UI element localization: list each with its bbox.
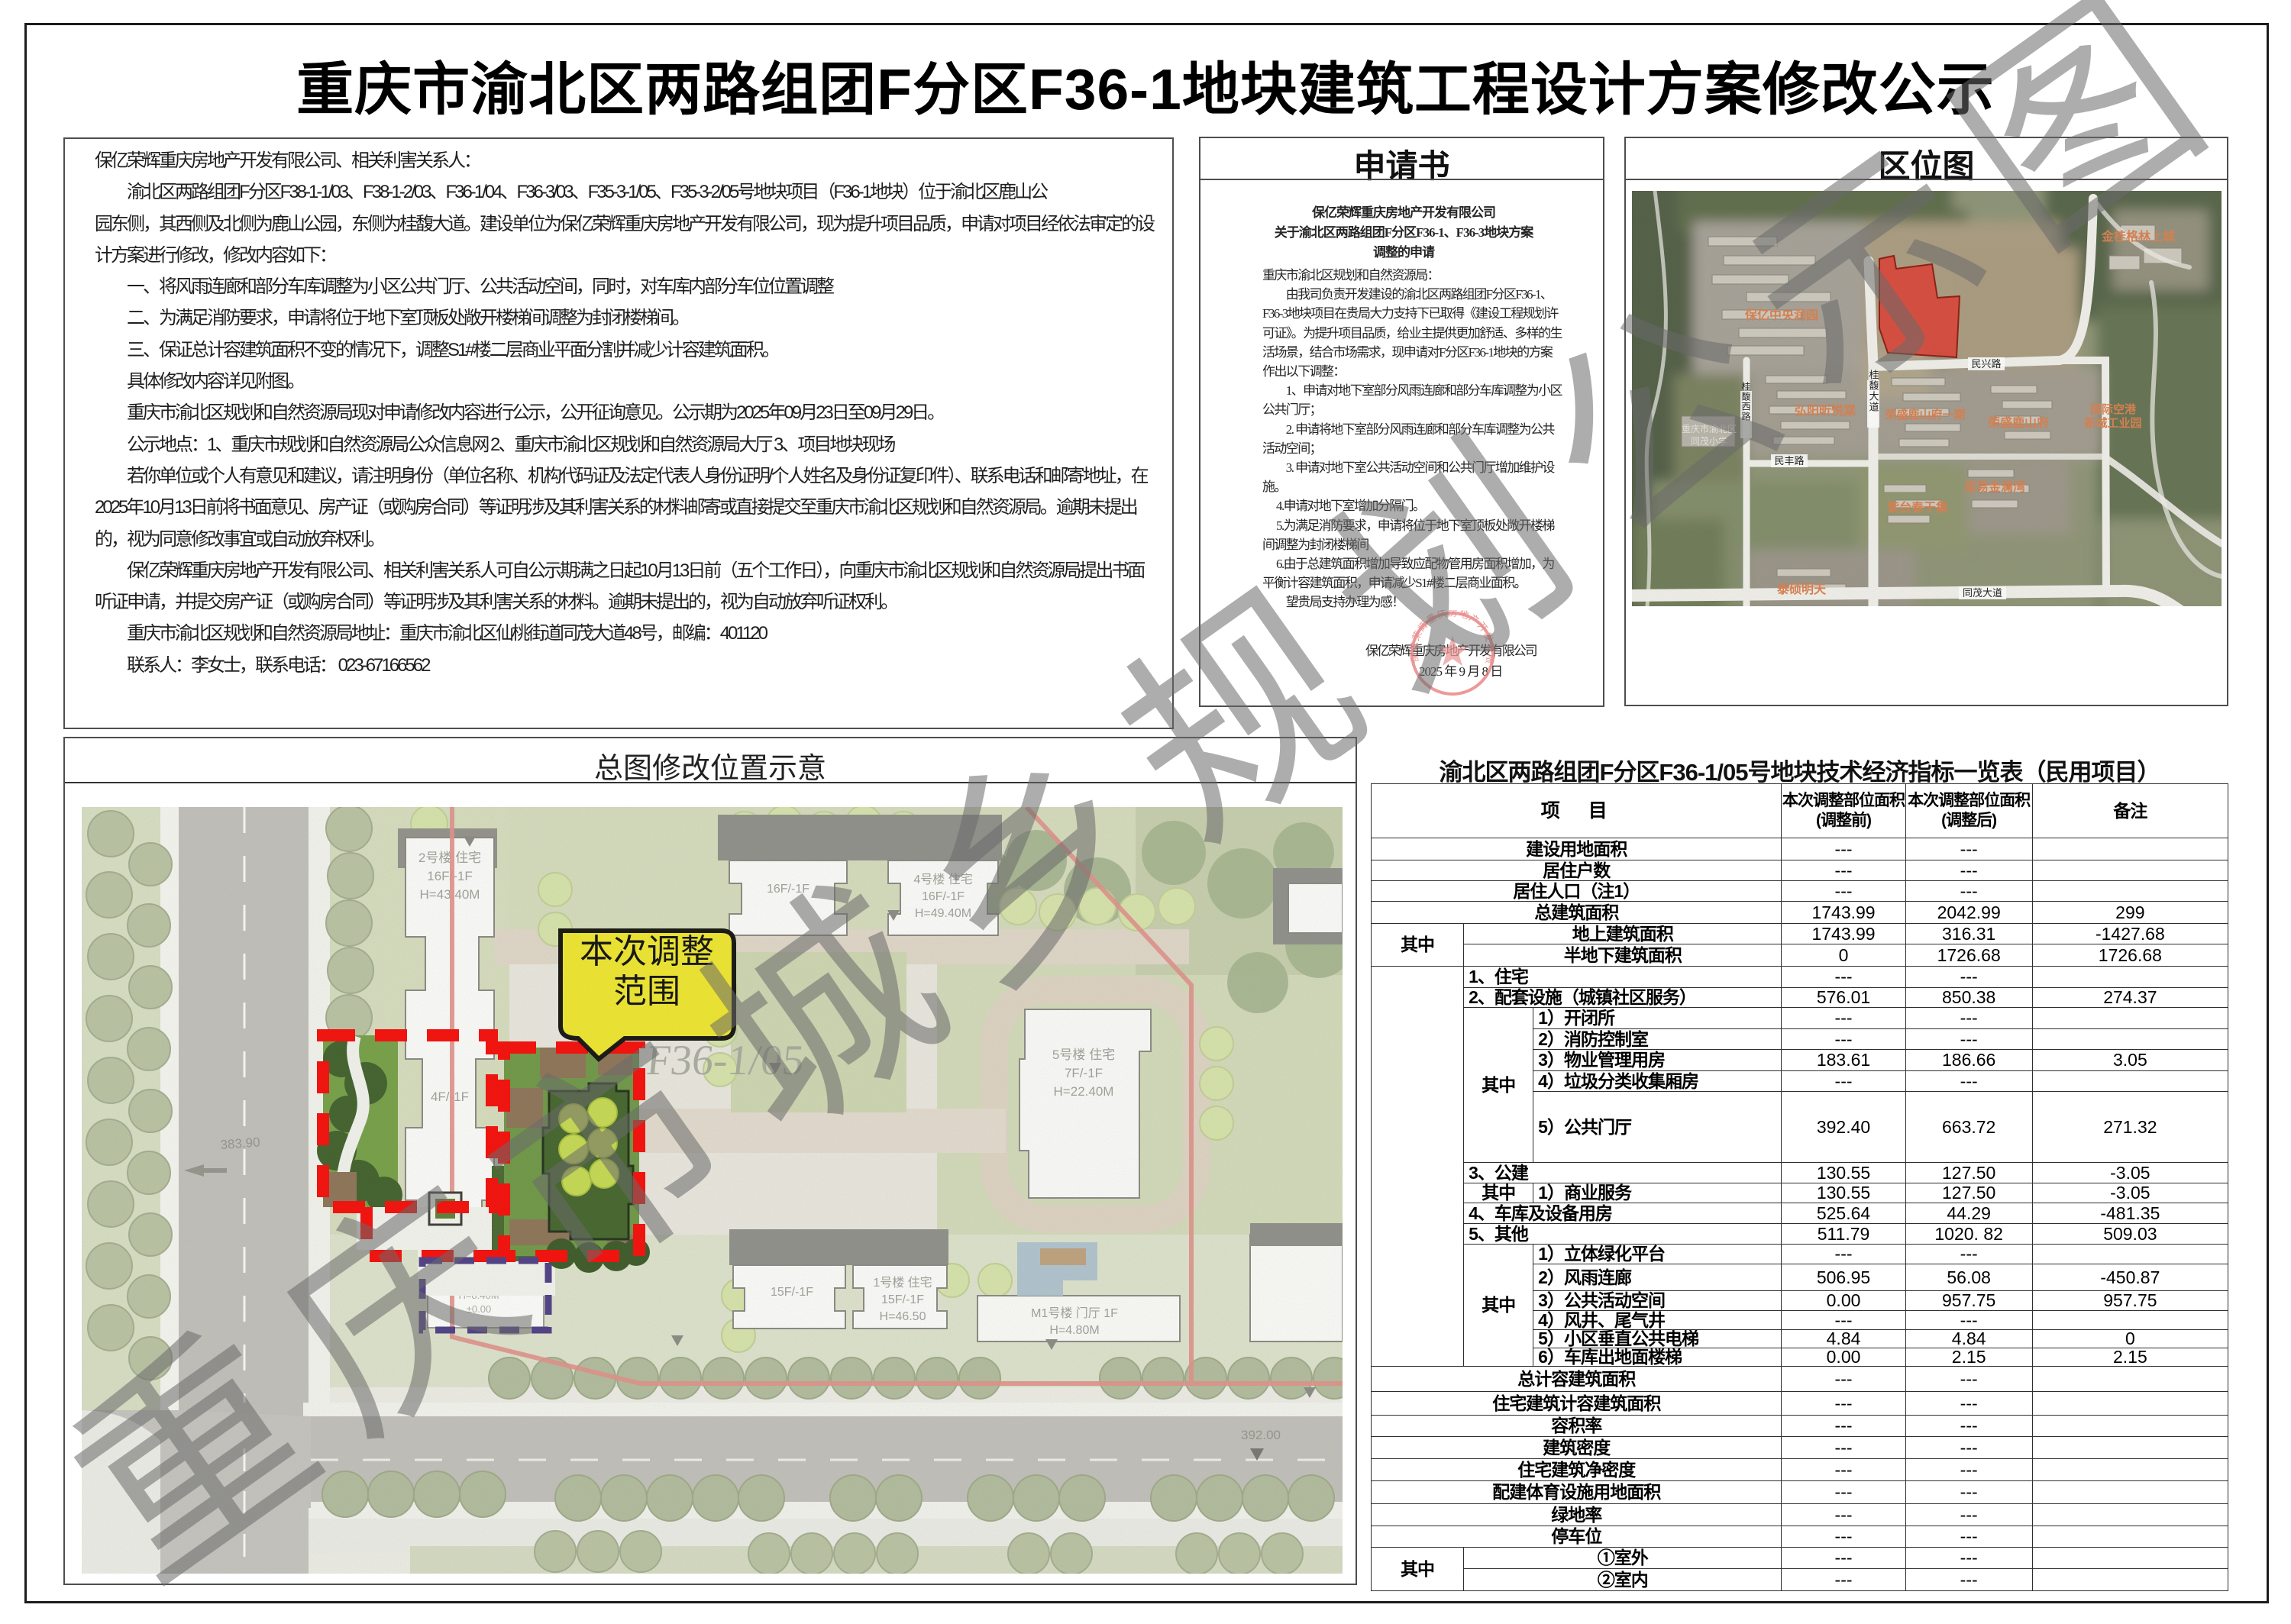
svg-text:泰硕明天: 泰硕明天 [1776,582,1827,596]
svg-text:紫台春干集: 紫台春干集 [1887,500,1949,515]
svg-text:新城工业园: 新城工业园 [2084,416,2141,430]
svg-text:同茂大道: 同茂大道 [1963,587,2002,599]
svg-text:民兴路: 民兴路 [1971,358,2001,370]
svg-text:荣盛鹿山府: 荣盛鹿山府 [1987,415,2049,430]
svg-text:荣盛鹿山府一期: 荣盛鹿山府一期 [1884,408,1965,421]
svg-text:居易金澜湾: 居易金澜湾 [1964,479,2025,494]
svg-text:国际空港: 国际空港 [2090,402,2137,416]
